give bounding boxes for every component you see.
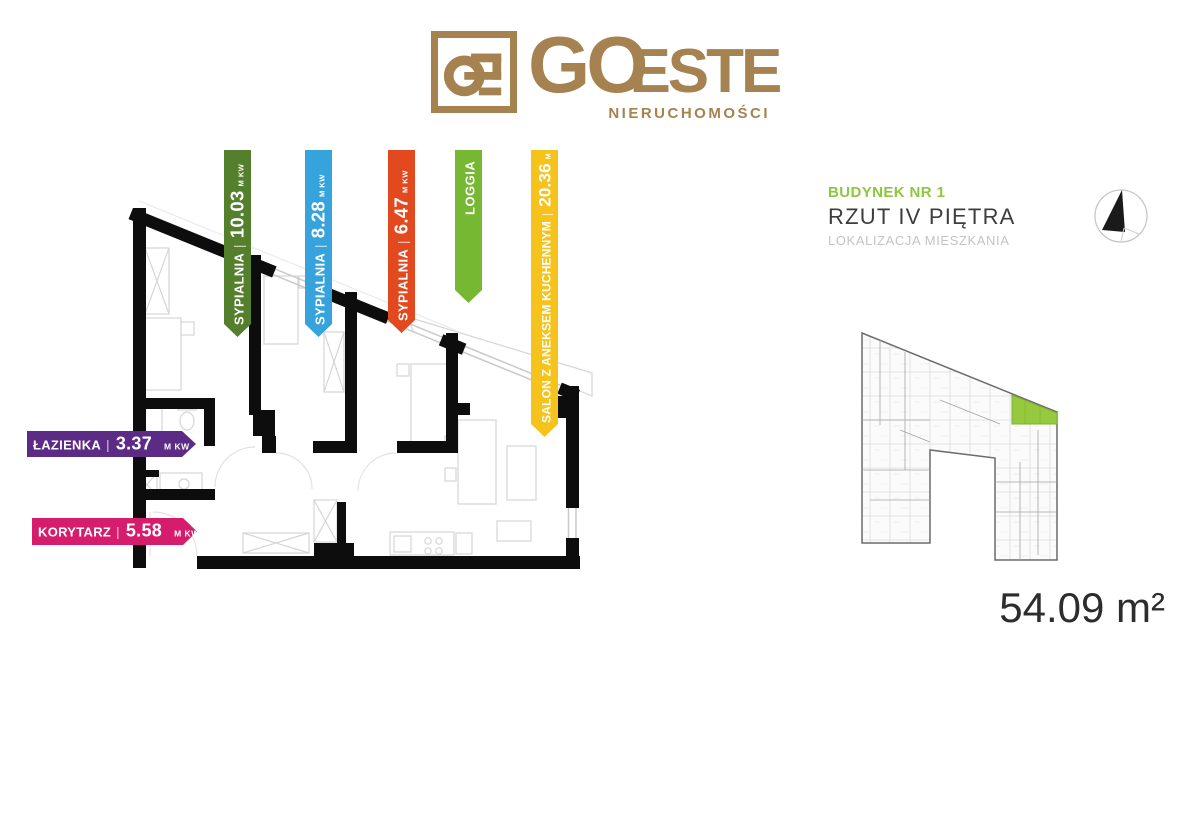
north-compass-icon [1088,183,1154,249]
room-flag-loggia: LOGGIA [455,150,482,303]
furniture-layer [137,201,592,555]
building-overview-plan [820,320,1090,580]
location-sublabel: LOKALIZACJA MIESZKANIA [828,233,1058,248]
room-flag-livingroom: SALON Z ANEKSEM KUCHENNYM|20.36M KW [531,140,558,437]
ge-monogram-icon [438,38,510,106]
room-flag-bedroom-1: SYPIALNIA|10.03M KW [224,150,251,337]
room-flag-bathroom: ŁAZIENKA|3.37M KW [27,431,196,457]
brand-name-go: GO [528,20,644,109]
room-flag-bedroom-3: SYPIALNIA|6.47M KW [388,150,415,333]
brand-monogram-box [431,31,517,113]
svg-text:LOGGIA: LOGGIA [463,161,478,215]
room-flag-corridor: KORYTARZ|5.58M KW [32,518,200,545]
building-footprint [862,333,1057,560]
flyer-page: GOESTE NIERUCHOMOŚCI [0,0,1200,840]
total-area-label: 54.09 m² [980,584,1165,632]
floor-plan-label: RZUT IV PIĘTRA [828,204,1058,230]
walls-layer [129,208,581,569]
room-flag-bedroom-2: SYPIALNIA|8.28M KW [305,150,332,337]
building-number-label: BUDYNEK NR 1 [828,184,1058,201]
brand-name-este: ESTE [629,37,779,106]
apartment-floor-plan: SYPIALNIA|10.03M KW SYPIALNIA|8.28M KW S… [20,140,640,585]
location-header: BUDYNEK NR 1 RZUT IV PIĘTRA LOKALIZACJA … [828,184,1058,248]
brand-wordmark: GOESTE NIERUCHOMOŚCI [528,26,770,122]
